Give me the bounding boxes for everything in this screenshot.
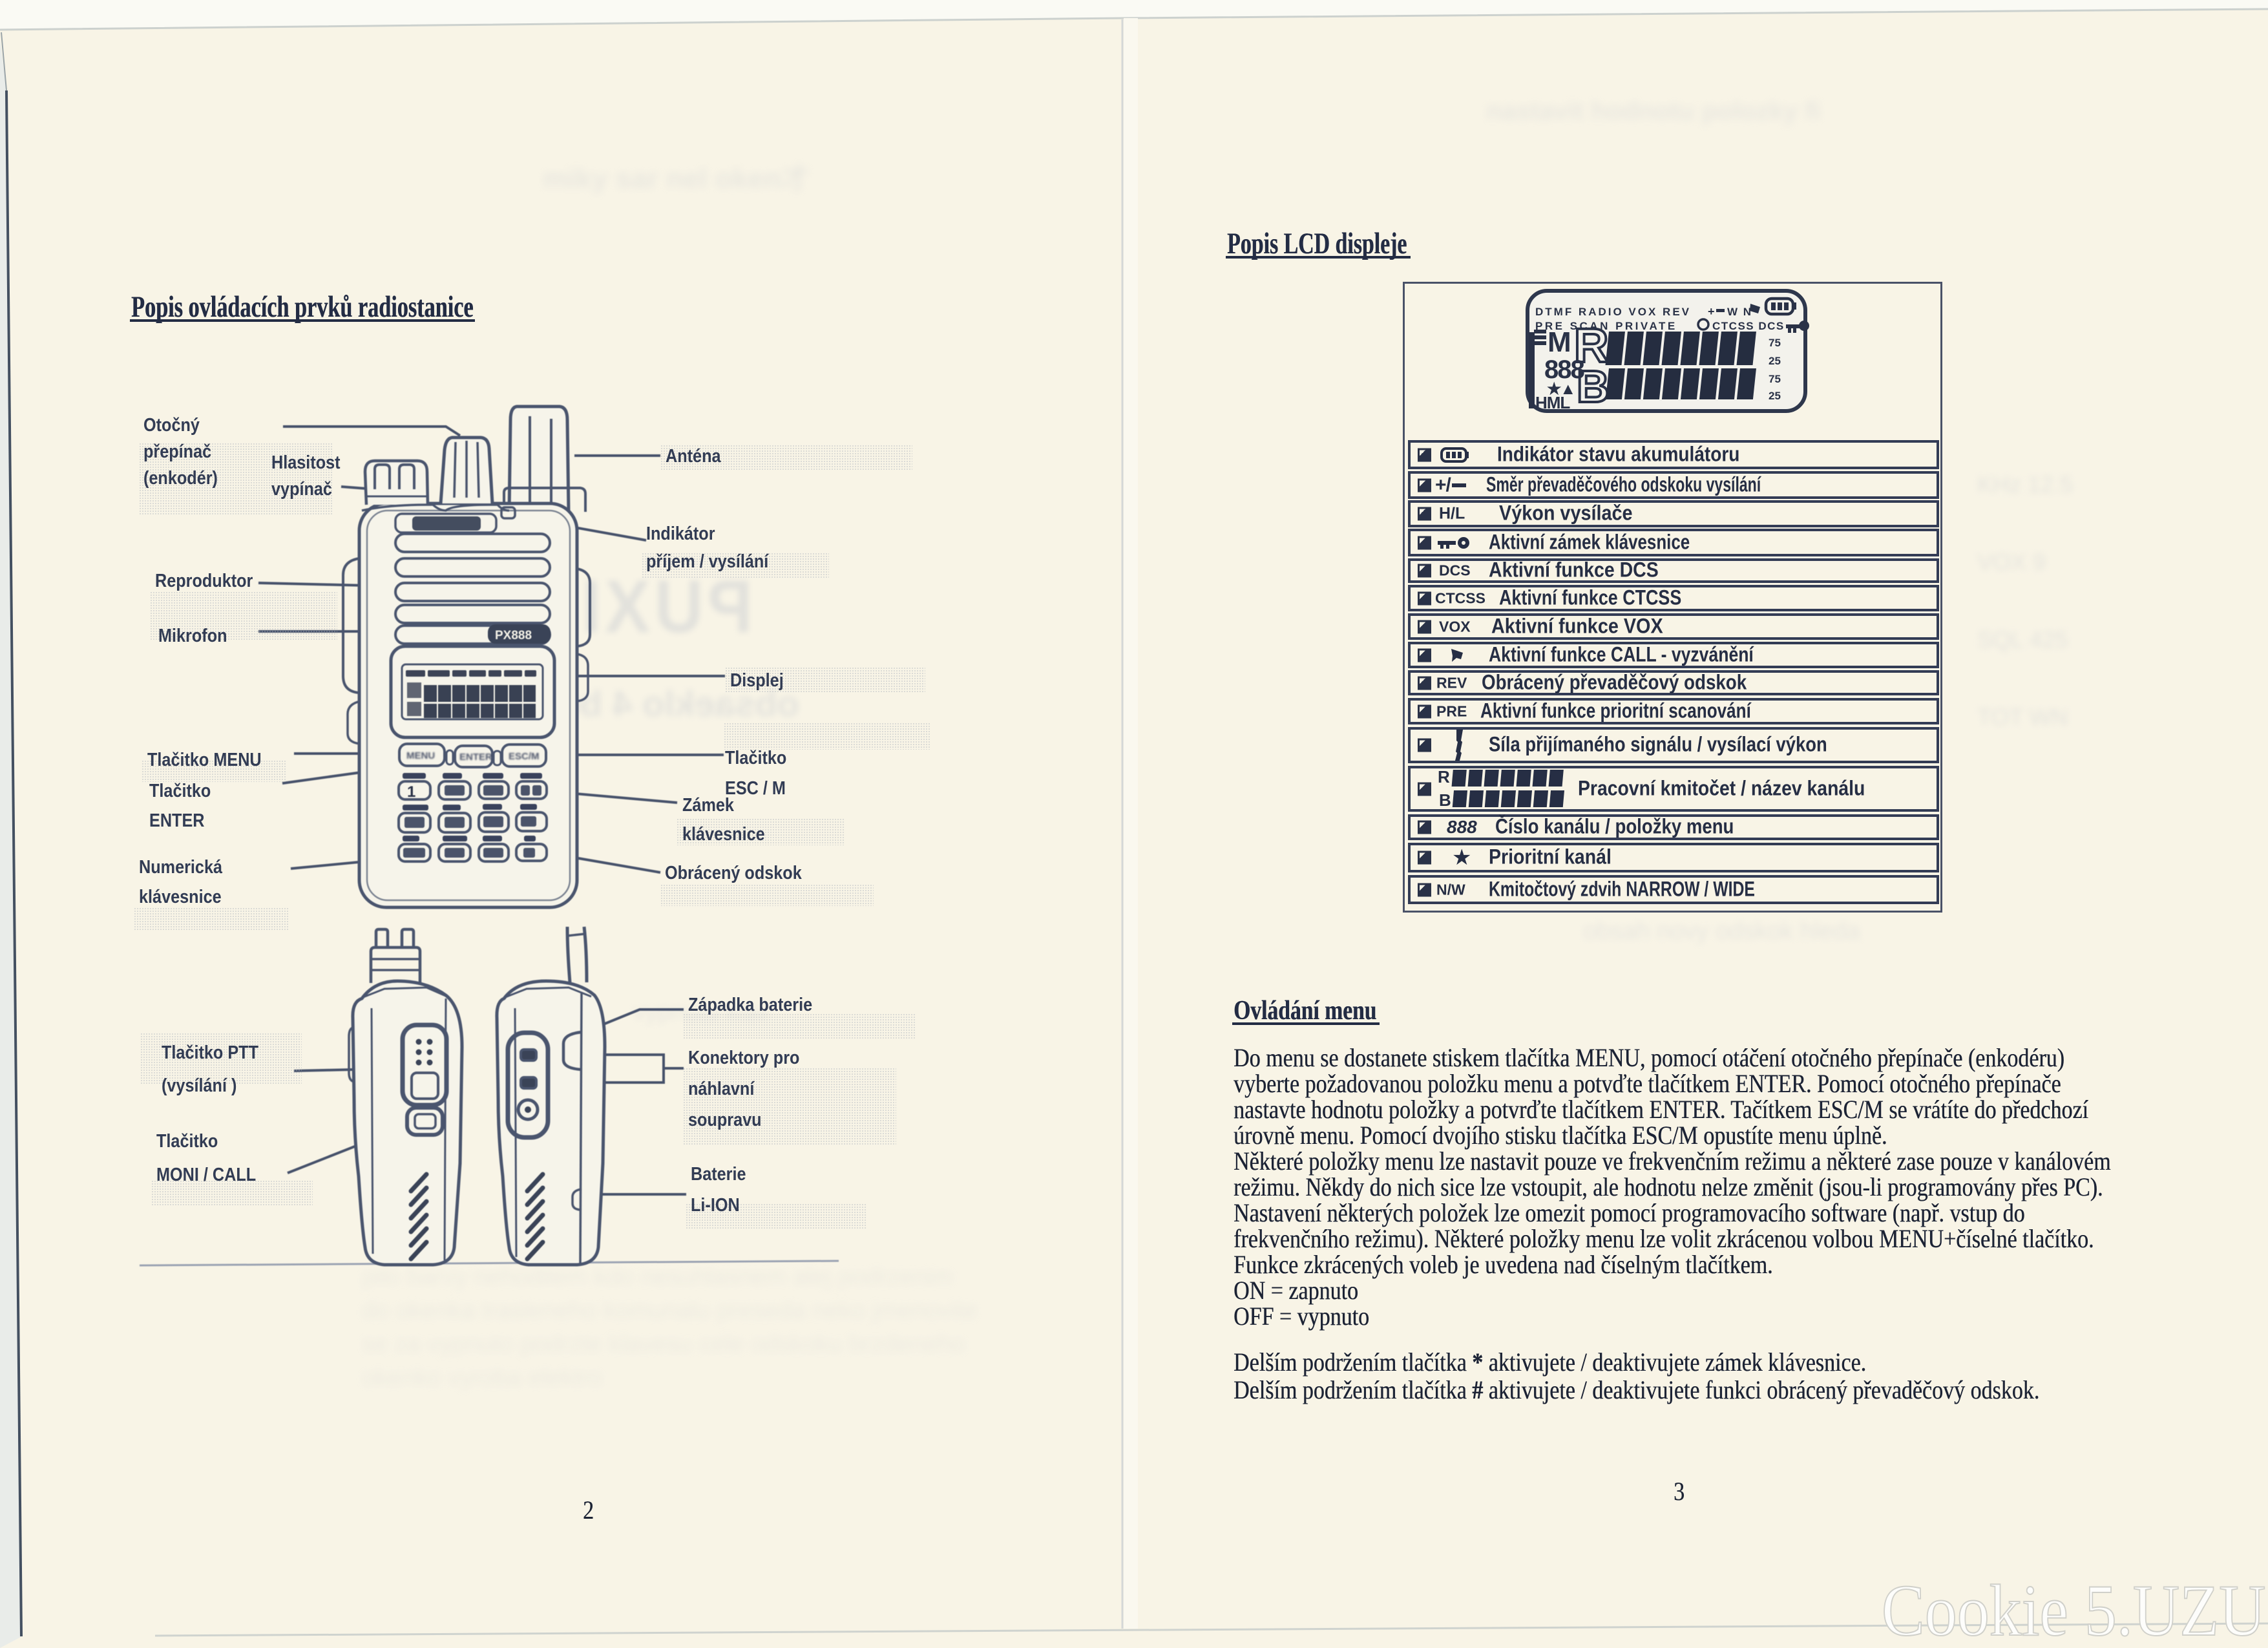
svg-text:CTCSS DCS: CTCSS DCS bbox=[1712, 320, 1785, 332]
svg-text:HML: HML bbox=[1535, 393, 1570, 412]
svg-text:1: 1 bbox=[407, 783, 415, 801]
svg-text:75: 75 bbox=[1769, 373, 1781, 385]
svg-text:25: 25 bbox=[1769, 355, 1781, 367]
svg-text:M: M bbox=[1548, 326, 1570, 358]
svg-text:25: 25 bbox=[1769, 390, 1781, 402]
svg-text:DTMF RADIO VOX REV: DTMF RADIO VOX REV bbox=[1535, 306, 1691, 318]
svg-text:75: 75 bbox=[1769, 337, 1781, 349]
svg-text:ESC/M: ESC/M bbox=[509, 751, 540, 762]
svg-text:W N: W N bbox=[1727, 306, 1752, 318]
svg-text:MENU: MENU bbox=[406, 750, 435, 761]
svg-text:R: R bbox=[1438, 768, 1450, 787]
svg-text:+: + bbox=[1708, 305, 1715, 318]
svg-text:B: B bbox=[1439, 790, 1451, 810]
svg-text:PX888: PX888 bbox=[495, 629, 532, 642]
svg-text:ENTER: ENTER bbox=[459, 752, 492, 763]
svg-text:B: B bbox=[1577, 361, 1610, 412]
